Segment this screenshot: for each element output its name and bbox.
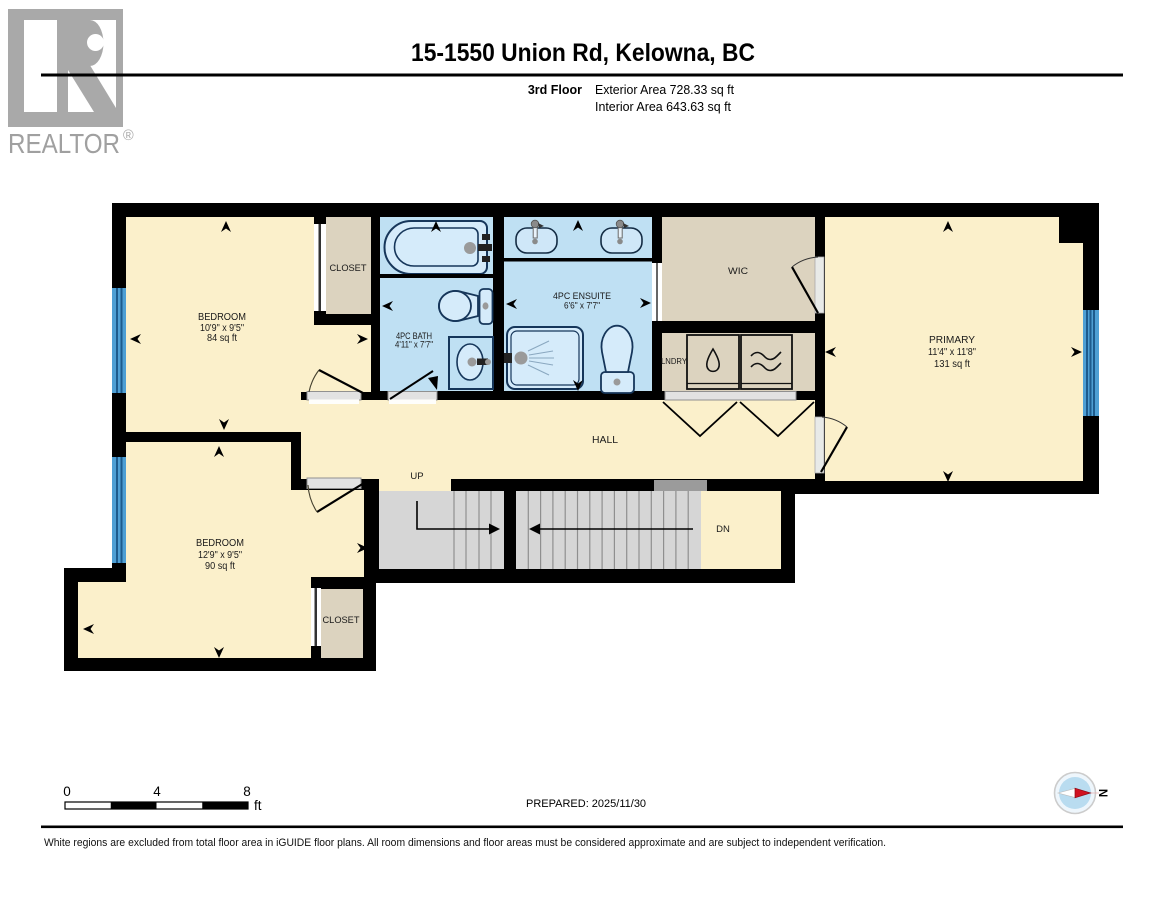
svg-text:6'6" x 7'7": 6'6" x 7'7" (564, 301, 600, 312)
svg-text:HALL: HALL (592, 435, 618, 446)
svg-text:4'11" x 7'7": 4'11" x 7'7" (395, 340, 433, 350)
svg-text:BEDROOM: BEDROOM (198, 312, 246, 323)
svg-text:LNDRY: LNDRY (661, 357, 688, 366)
svg-text:CLOSET: CLOSET (323, 615, 360, 626)
svg-text:PRIMARY: PRIMARY (929, 335, 975, 346)
svg-text:8: 8 (243, 784, 251, 799)
svg-text:DN: DN (716, 524, 730, 535)
svg-text:Interior Area 643.63 sq ft: Interior Area 643.63 sq ft (595, 100, 732, 114)
svg-text:ft: ft (254, 798, 262, 813)
svg-text:131 sq ft: 131 sq ft (934, 359, 970, 370)
svg-text:UP: UP (410, 471, 423, 482)
svg-text:BEDROOM: BEDROOM (196, 538, 244, 549)
svg-text:4: 4 (153, 784, 161, 799)
svg-text:90 sq ft: 90 sq ft (205, 561, 235, 572)
svg-text:N: N (1096, 789, 1108, 797)
svg-text:PREPARED: 2025/11/30: PREPARED: 2025/11/30 (526, 798, 646, 810)
svg-text:0: 0 (63, 784, 71, 799)
svg-text:WIC: WIC (728, 266, 748, 277)
svg-text:11'4" x 11'8": 11'4" x 11'8" (928, 347, 976, 358)
svg-text:84 sq ft: 84 sq ft (207, 333, 237, 344)
svg-text:15-1550 Union Rd, Kelowna, BC: 15-1550 Union Rd, Kelowna, BC (411, 39, 755, 67)
svg-text:REALTOR: REALTOR (8, 128, 120, 159)
svg-text:12'9" x 9'5": 12'9" x 9'5" (198, 550, 242, 561)
svg-text:Exterior Area 728.33 sq ft: Exterior Area 728.33 sq ft (595, 83, 735, 97)
svg-text:CLOSET: CLOSET (330, 263, 367, 274)
svg-text:White regions are excluded fro: White regions are excluded from total fl… (44, 837, 886, 849)
svg-text:3rd Floor: 3rd Floor (528, 83, 582, 97)
svg-text:®: ® (123, 128, 134, 144)
